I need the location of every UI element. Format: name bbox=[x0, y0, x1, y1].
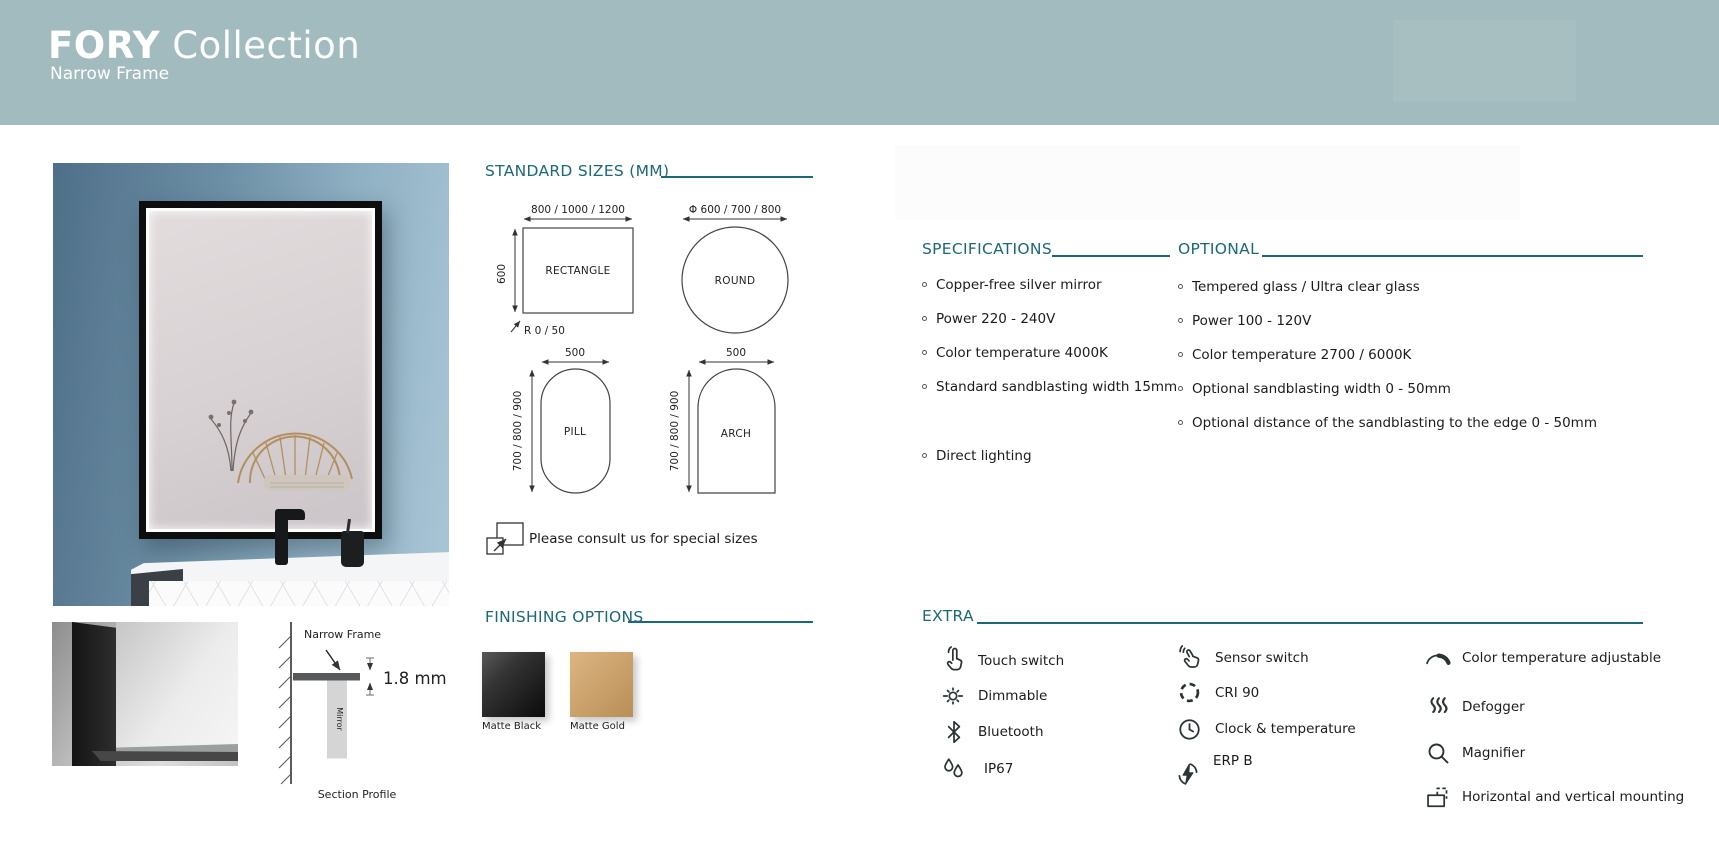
photo-tumbler bbox=[341, 531, 364, 567]
sensor-hand-icon bbox=[1176, 642, 1206, 672]
bullet-icon bbox=[922, 316, 927, 321]
extra-title: EXTRA bbox=[922, 607, 974, 625]
header-banner: FORY Collection Narrow Frame bbox=[0, 0, 1719, 125]
feature-label: IP67 bbox=[984, 761, 1013, 777]
mirror-with-frame bbox=[139, 201, 382, 539]
standard-sizes-title: STANDARD SIZES (MM) bbox=[485, 162, 669, 180]
brightness-icon bbox=[940, 683, 966, 709]
pill-label: PILL bbox=[564, 426, 586, 438]
specifications-underline bbox=[1052, 255, 1170, 257]
arch-width-dim: 500 bbox=[726, 347, 746, 359]
spec-item: Color temperature 4000K bbox=[922, 345, 1108, 361]
extra-underline bbox=[977, 622, 1643, 624]
arch-height-dim: 700 / 800 / 900 bbox=[669, 391, 681, 472]
matte-gold-label: Matte Gold bbox=[570, 721, 625, 732]
feature-label: CRI 90 bbox=[1215, 685, 1259, 701]
heat-waves-icon bbox=[1426, 693, 1452, 723]
mounting-icon bbox=[1424, 783, 1454, 811]
optional-item: Optional distance of the sandblasting to… bbox=[1178, 415, 1597, 431]
round-label: ROUND bbox=[715, 275, 756, 287]
background-panel bbox=[895, 145, 1520, 220]
feature-label: Dimmable bbox=[978, 688, 1047, 704]
frame-bottom bbox=[92, 751, 238, 761]
standard-sizes-underline bbox=[661, 176, 813, 178]
bullet-icon bbox=[1178, 352, 1183, 357]
frame-bar bbox=[293, 673, 360, 681]
narrow-frame-label: Narrow Frame bbox=[304, 628, 381, 641]
optional-item: Color temperature 2700 / 6000K bbox=[1178, 347, 1411, 363]
optional-item: Tempered glass / Ultra clear glass bbox=[1178, 279, 1420, 295]
matte-black-label: Matte Black bbox=[482, 721, 541, 732]
feature-label: Clock & temperature bbox=[1215, 721, 1356, 737]
photo-faucet-stem bbox=[275, 513, 288, 565]
frame-detail-photo bbox=[52, 622, 238, 766]
section-profile-diagram: Narrow Frame Mirror 1.8 mm Section Profi… bbox=[252, 612, 482, 808]
feature-label: Bluetooth bbox=[978, 724, 1044, 740]
round-diameter-dim: Φ 600 / 700 / 800 bbox=[689, 204, 781, 216]
spec-item: Standard sandblasting width 15mm bbox=[922, 379, 1177, 395]
bullet-icon bbox=[922, 453, 927, 458]
brand-name: FORY bbox=[48, 24, 160, 67]
pill-height-dim: 700 / 800 / 900 bbox=[512, 391, 524, 472]
bullet-icon bbox=[922, 350, 927, 355]
spec-item: Direct lighting bbox=[922, 448, 1032, 464]
touch-icon bbox=[940, 644, 968, 674]
feature-label: Horizontal and vertical mounting bbox=[1462, 789, 1684, 805]
thickness-dimension bbox=[366, 658, 374, 695]
size-diagrams: 800 / 1000 / 1200 600 R 0 / 50 RECTANGLE… bbox=[460, 185, 820, 515]
bullet-icon bbox=[922, 384, 927, 389]
feature-label: Defogger bbox=[1462, 699, 1525, 715]
finishing-options-title: FINISHING OPTIONS bbox=[485, 608, 644, 626]
matte-black-swatch bbox=[482, 652, 545, 717]
feature-label: Magnifier bbox=[1462, 745, 1525, 761]
mirror-pane bbox=[116, 622, 238, 754]
rectangle-corner-radius: R 0 / 50 bbox=[524, 325, 565, 337]
thickness-value: 1.8 mm bbox=[383, 669, 447, 688]
special-sizes-icon bbox=[484, 520, 526, 562]
photo-vanity-front bbox=[149, 581, 449, 606]
specifications-title: SPECIFICATIONS bbox=[922, 240, 1052, 258]
arch-label: ARCH bbox=[721, 428, 751, 440]
brand-suffix: Collection bbox=[160, 24, 360, 67]
spec-item: Power 220 - 240V bbox=[922, 311, 1055, 327]
spec-item: Copper-free silver mirror bbox=[922, 277, 1102, 293]
special-sizes-note: Please consult us for special sizes bbox=[529, 531, 758, 547]
feature-label: ERP B bbox=[1213, 753, 1253, 769]
bullet-icon bbox=[1178, 386, 1183, 391]
wall-hatching bbox=[279, 636, 291, 784]
mirror-led-glass bbox=[146, 208, 375, 532]
arc-dial-icon bbox=[1423, 645, 1453, 669]
section-profile-caption: Section Profile bbox=[318, 788, 397, 801]
pill-width-dim: 500 bbox=[565, 347, 585, 359]
rectangle-width-dim: 800 / 1000 / 1200 bbox=[531, 204, 625, 216]
page-subtitle: Narrow Frame bbox=[50, 64, 169, 84]
pointer-arrow bbox=[326, 650, 340, 670]
bluetooth-icon bbox=[941, 718, 967, 746]
mirror-label: Mirror bbox=[335, 707, 344, 731]
bullet-icon bbox=[922, 282, 927, 287]
frame-edge bbox=[72, 622, 116, 766]
product-photo bbox=[53, 163, 449, 606]
bullet-icon bbox=[1178, 420, 1183, 425]
optional-item: Optional sandblasting width 0 - 50mm bbox=[1178, 381, 1451, 397]
reflected-chair bbox=[220, 387, 370, 507]
rectangle-label: RECTANGLE bbox=[545, 265, 610, 277]
optional-item: Power 100 - 120V bbox=[1178, 313, 1311, 329]
optional-title: OPTIONAL bbox=[1178, 240, 1259, 258]
magnifier-icon bbox=[1425, 740, 1452, 767]
clock-icon bbox=[1176, 716, 1203, 743]
energy-bolt-icon bbox=[1174, 760, 1202, 788]
bullet-icon bbox=[1178, 318, 1183, 323]
feature-label: Touch switch bbox=[978, 653, 1064, 669]
page-title: FORY Collection bbox=[48, 24, 360, 67]
dashed-circle-icon bbox=[1176, 679, 1203, 706]
optional-underline bbox=[1262, 255, 1643, 257]
header-decor-box bbox=[1393, 20, 1576, 102]
finishing-options-underline bbox=[628, 621, 813, 623]
feature-label: Sensor switch bbox=[1215, 650, 1309, 666]
matte-gold-swatch bbox=[570, 652, 633, 717]
water-drops-icon bbox=[939, 755, 969, 783]
bullet-icon bbox=[1178, 284, 1183, 289]
rectangle-height-dim: 600 bbox=[496, 264, 508, 284]
feature-label: Color temperature adjustable bbox=[1462, 650, 1661, 666]
